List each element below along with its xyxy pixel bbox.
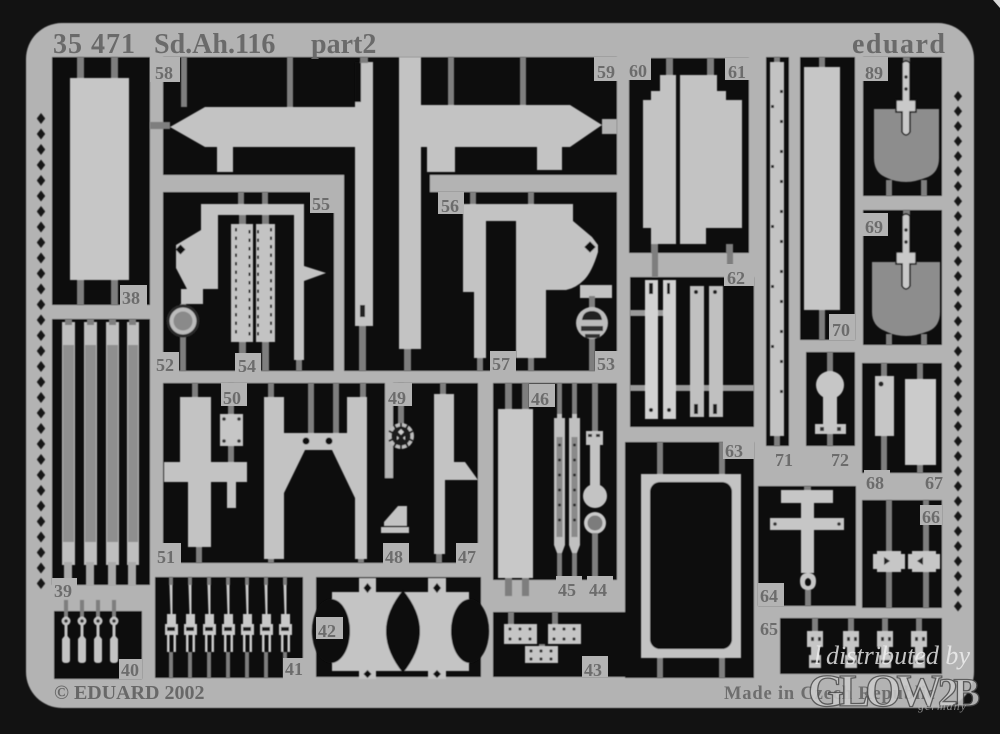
svg-text:51: 51 — [157, 547, 175, 567]
svg-text:65: 65 — [760, 619, 778, 639]
svg-text:60: 60 — [629, 61, 647, 81]
svg-text:66: 66 — [922, 507, 940, 527]
svg-text:54: 54 — [238, 356, 256, 376]
svg-text:52: 52 — [156, 355, 174, 375]
svg-text:72: 72 — [831, 450, 849, 470]
svg-text:50: 50 — [223, 388, 241, 408]
svg-text:46: 46 — [531, 389, 549, 409]
svg-text:45: 45 — [558, 580, 576, 600]
svg-text:49: 49 — [388, 388, 406, 408]
svg-text:43: 43 — [584, 660, 602, 680]
svg-text:61: 61 — [728, 62, 746, 82]
svg-text:58: 58 — [155, 63, 173, 83]
svg-text:62: 62 — [727, 268, 745, 288]
svg-text:67: 67 — [925, 473, 943, 493]
svg-text:part2: part2 — [311, 29, 376, 60]
svg-text:38: 38 — [122, 288, 140, 308]
svg-text:56: 56 — [441, 196, 459, 216]
svg-text:48: 48 — [385, 547, 403, 567]
svg-text:40: 40 — [121, 660, 139, 680]
svg-text:41: 41 — [285, 659, 303, 679]
svg-text:42: 42 — [318, 621, 336, 641]
svg-text:64: 64 — [760, 586, 778, 606]
svg-text:44: 44 — [589, 580, 607, 600]
svg-text:69: 69 — [865, 217, 883, 237]
svg-text:© EDUARD 2002: © EDUARD 2002 — [54, 682, 205, 704]
svg-text:68: 68 — [866, 473, 884, 493]
svg-text:57: 57 — [492, 354, 510, 374]
svg-text:89: 89 — [865, 63, 883, 83]
svg-text:germany: germany — [918, 699, 967, 713]
svg-text:63: 63 — [725, 441, 743, 461]
svg-text:Sd.Ah.116: Sd.Ah.116 — [154, 29, 275, 60]
svg-text:55: 55 — [312, 194, 330, 214]
svg-text:35 471: 35 471 — [53, 29, 136, 60]
svg-text:53: 53 — [597, 354, 615, 374]
svg-text:47: 47 — [458, 547, 476, 567]
svg-text:70: 70 — [832, 320, 850, 340]
svg-text:39: 39 — [54, 581, 72, 601]
svg-text:71: 71 — [775, 450, 793, 470]
svg-text:59: 59 — [597, 62, 615, 82]
